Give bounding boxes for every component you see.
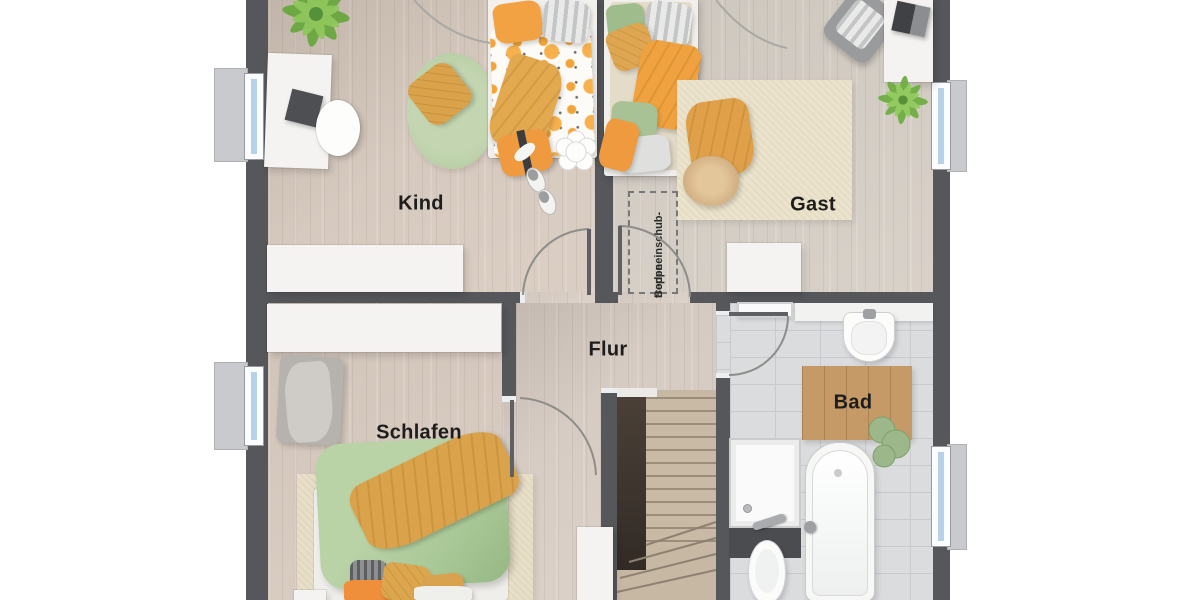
door-gast	[619, 226, 690, 297]
slippers-icon	[523, 165, 559, 217]
label-schlafen: Schlafen	[376, 422, 462, 445]
label-gast: Gast	[790, 194, 836, 217]
door-kind	[523, 229, 589, 295]
floor-plan: Bodeneinschub- treppe	[0, 0, 1200, 600]
label-bad: Bad	[834, 392, 873, 415]
plant-icon	[878, 75, 929, 124]
plant-icon	[281, 0, 351, 48]
flower-table-icon	[556, 131, 596, 170]
label-flur: Flur	[589, 339, 628, 362]
plan-overlay	[0, 0, 1200, 600]
door-schlafen	[512, 398, 596, 477]
door-bad	[729, 314, 788, 375]
door-arc-top-gast	[716, 0, 787, 48]
towel-icon	[869, 417, 910, 467]
label-kind: Kind	[398, 193, 444, 216]
door-arc-top-kind	[414, 0, 490, 43]
